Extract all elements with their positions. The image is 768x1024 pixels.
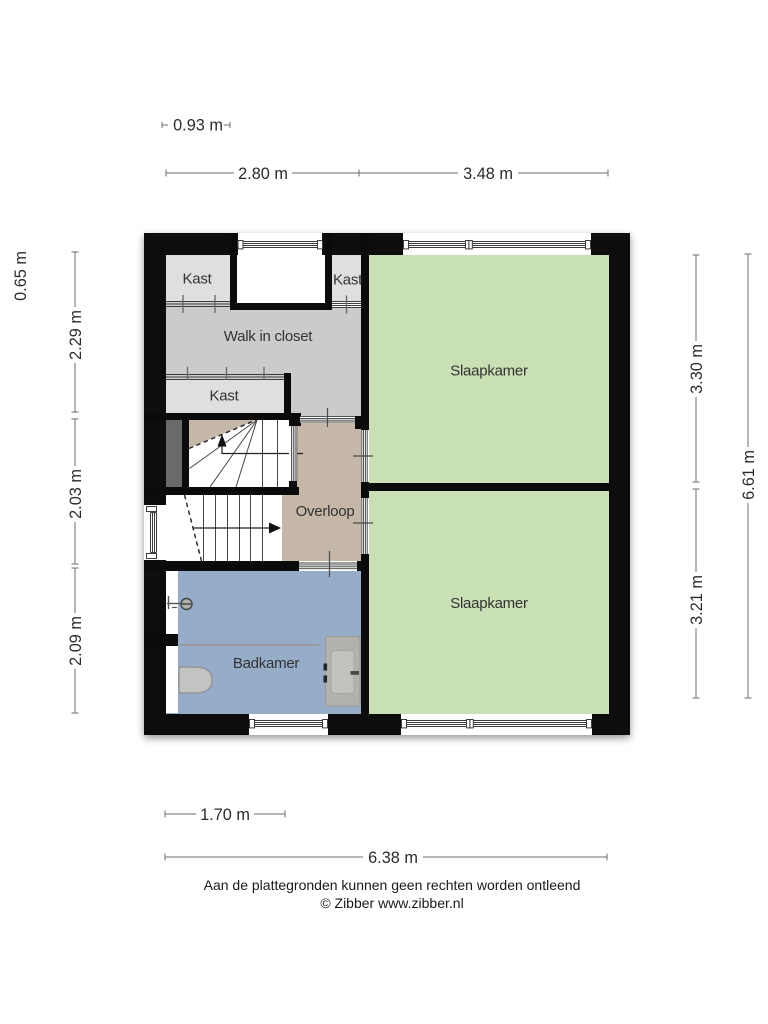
svg-text:© Zibber www.zibber.nl: © Zibber www.zibber.nl: [320, 895, 463, 911]
svg-text:Slaapkamer: Slaapkamer: [450, 595, 528, 612]
svg-text:2.03 m: 2.03 m: [67, 469, 85, 519]
svg-text:1.70 m: 1.70 m: [200, 806, 250, 824]
svg-text:Kast: Kast: [333, 272, 363, 289]
svg-text:2.80 m: 2.80 m: [238, 165, 288, 183]
svg-text:2.09 m: 2.09 m: [67, 616, 85, 666]
svg-text:6.61 m: 6.61 m: [740, 450, 758, 500]
svg-text:0.93 m: 0.93 m: [173, 117, 223, 135]
svg-text:2.29 m: 2.29 m: [67, 310, 85, 360]
svg-text:3.48 m: 3.48 m: [463, 165, 513, 183]
svg-text:Walk in closet: Walk in closet: [224, 328, 314, 345]
svg-text:Overloop: Overloop: [296, 503, 355, 520]
svg-text:Slaapkamer: Slaapkamer: [450, 363, 528, 380]
svg-text:0.65 m: 0.65 m: [12, 251, 30, 301]
svg-text:3.30 m: 3.30 m: [688, 344, 706, 394]
svg-text:Aan de plattegronden kunnen ge: Aan de plattegronden kunnen geen rechten…: [204, 877, 581, 893]
svg-text:Kast: Kast: [182, 271, 212, 288]
svg-text:6.38 m: 6.38 m: [368, 849, 418, 867]
svg-text:3.21 m: 3.21 m: [688, 575, 706, 625]
svg-text:Badkamer: Badkamer: [233, 655, 300, 672]
svg-text:Kast: Kast: [209, 388, 239, 405]
